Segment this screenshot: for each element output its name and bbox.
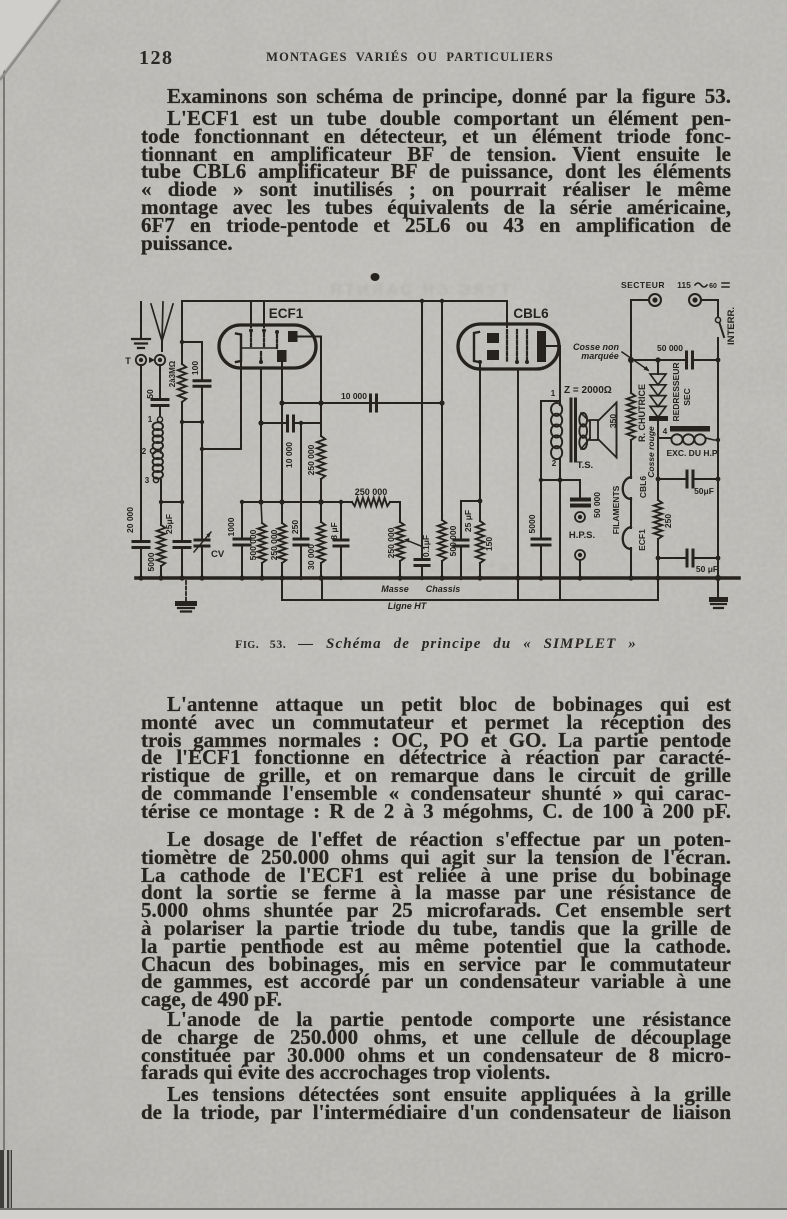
- svg-text:500 000: 500 000: [248, 529, 258, 560]
- svg-text:250 000: 250 000: [386, 527, 396, 558]
- svg-text:2à3MΩ: 2à3MΩ: [168, 360, 177, 387]
- svg-text:FILAMENTS: FILAMENTS: [611, 485, 621, 534]
- svg-text:Chassis: Chassis: [426, 584, 461, 594]
- svg-text:REDRESSEUR: REDRESSEUR: [671, 362, 681, 421]
- svg-text:10 000: 10 000: [341, 391, 367, 401]
- svg-text:60: 60: [709, 283, 717, 290]
- svg-text:350: 350: [608, 414, 618, 428]
- svg-text:SECTEUR: SECTEUR: [621, 280, 665, 290]
- svg-text:marquée: marquée: [581, 351, 619, 361]
- svg-text:8 μF: 8 μF: [329, 522, 339, 539]
- svg-text:250: 250: [663, 514, 673, 528]
- svg-text:0.1μF: 0.1μF: [421, 535, 431, 557]
- svg-text:1: 1: [148, 415, 153, 424]
- svg-text:115: 115: [677, 280, 691, 290]
- svg-text:CBL6: CBL6: [638, 476, 648, 498]
- svg-text:50μF: 50μF: [694, 486, 714, 496]
- svg-text:1000: 1000: [226, 517, 236, 536]
- svg-text:3: 3: [145, 476, 150, 485]
- svg-text:4: 4: [663, 427, 668, 436]
- svg-text:INTERR.: INTERR.: [726, 307, 737, 345]
- svg-text:Ligne HT: Ligne HT: [388, 601, 428, 611]
- svg-text:10 000: 10 000: [284, 442, 294, 468]
- svg-text:100: 100: [190, 361, 200, 375]
- svg-text:250 000: 250 000: [306, 444, 316, 475]
- svg-text:2: 2: [142, 447, 147, 456]
- svg-text:Masse: Masse: [381, 584, 409, 594]
- svg-text:ECF1: ECF1: [637, 529, 647, 551]
- svg-text:Cosse rouge: Cosse rouge: [646, 426, 656, 478]
- svg-text:H.P.S.: H.P.S.: [569, 530, 595, 541]
- svg-text:Z = 2000Ω: Z = 2000Ω: [564, 385, 612, 396]
- svg-text:250 000: 250 000: [269, 529, 279, 560]
- svg-text:20 000: 20 000: [125, 507, 135, 533]
- svg-text:CBL6: CBL6: [513, 306, 549, 321]
- svg-text:SEC: SEC: [682, 388, 692, 405]
- svg-text:250: 250: [290, 520, 300, 534]
- svg-text:150: 150: [484, 537, 494, 551]
- svg-text:ECF1: ECF1: [269, 306, 304, 321]
- svg-text:25μF: 25μF: [164, 514, 174, 534]
- svg-text:30 000: 30 000: [306, 544, 316, 570]
- svg-text:250 000: 250 000: [355, 487, 388, 497]
- svg-text:CV: CV: [211, 549, 225, 560]
- svg-text:50: 50: [145, 389, 155, 399]
- svg-text:T.S.: T.S.: [577, 460, 593, 471]
- svg-text:50 000: 50 000: [657, 343, 683, 353]
- svg-text:EXC. DU H.P: EXC. DU H.P: [666, 448, 717, 458]
- svg-text:5000: 5000: [146, 552, 156, 571]
- svg-text:50 000: 50 000: [592, 492, 602, 518]
- svg-text:5000: 5000: [527, 514, 537, 533]
- svg-text:T: T: [125, 356, 131, 366]
- svg-text:25 μF: 25 μF: [463, 510, 473, 532]
- svg-text:2: 2: [552, 459, 557, 468]
- svg-text:50 μF: 50 μF: [696, 564, 718, 574]
- svg-text:1: 1: [551, 389, 556, 398]
